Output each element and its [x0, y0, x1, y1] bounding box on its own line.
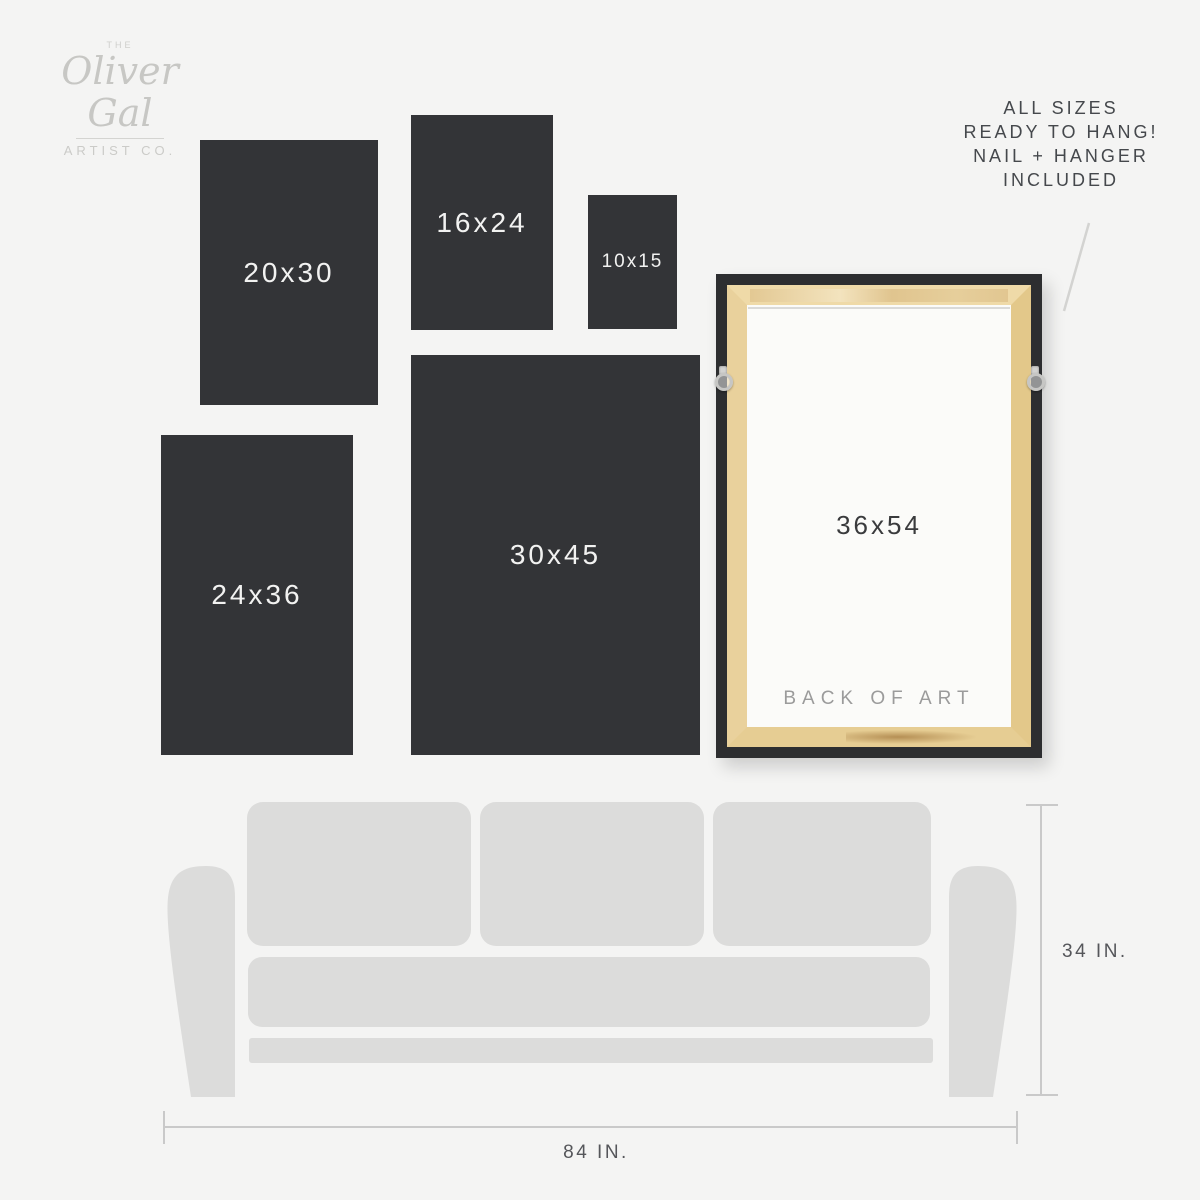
size-panel-24x36: 24x36: [161, 435, 353, 755]
d-ring-ring: [715, 373, 733, 391]
size-panel-36x54-back-of-art: 36x54 BACK OF ART: [716, 274, 1042, 758]
brand-logo-divider: [76, 138, 164, 139]
size-label-24x36: 24x36: [211, 579, 302, 611]
size-panel-16x24: 16x24: [411, 115, 553, 330]
couch-armrest-right: [949, 866, 1017, 1097]
couch-seat-cushion: [248, 957, 930, 1027]
canvas-seam: [748, 307, 1010, 309]
width-dimension-line: [164, 1111, 1017, 1144]
size-panel-10x15: 10x15: [588, 195, 677, 329]
size-panel-20x30: 20x30: [200, 140, 378, 405]
note-line-1: ALL SIZES: [928, 96, 1194, 120]
size-label-20x30: 20x30: [243, 257, 334, 289]
couch-back-cushion-1: [247, 802, 471, 946]
wood-grain-knot: [846, 730, 976, 744]
brand-logo-subtitle: ARTIST CO.: [28, 143, 212, 158]
ready-to-hang-note: ALL SIZES READY TO HANG! NAIL + HANGER I…: [928, 96, 1194, 192]
size-guide-infographic: THE Oliver Gal ARTIST CO. ALL SIZES READ…: [0, 0, 1200, 1200]
note-line-3: NAIL + HANGER: [928, 144, 1194, 168]
height-dimension-line: [1026, 805, 1058, 1095]
d-ring-hanger-right-icon: [1027, 366, 1043, 394]
d-ring-hanger-left-icon: [715, 366, 731, 394]
note-line-4: INCLUDED: [928, 168, 1194, 192]
couch-back-cushion-3: [713, 802, 931, 946]
couch-silhouette: [167, 802, 1016, 1097]
wood-grain-top: [750, 289, 1008, 302]
brand-logo-name: Oliver Gal: [28, 50, 212, 134]
size-label-36x54: 36x54: [716, 510, 1042, 541]
couch-armrest-left: [167, 866, 235, 1097]
brand-logo: THE Oliver Gal ARTIST CO.: [28, 40, 212, 158]
d-ring-ring: [1027, 373, 1045, 391]
size-label-16x24: 16x24: [436, 207, 527, 239]
couch-back-cushion-2: [480, 802, 704, 946]
couch-base-bar: [249, 1038, 933, 1063]
note-line-2: READY TO HANG!: [928, 120, 1194, 144]
note-pointer-line: [1064, 223, 1089, 311]
size-label-10x15: 10x15: [602, 251, 664, 273]
size-panel-30x45: 30x45: [411, 355, 700, 755]
size-label-30x45: 30x45: [510, 539, 601, 571]
couch-width-label: 84 IN.: [536, 1142, 656, 1164]
back-of-art-label: BACK OF ART: [716, 688, 1042, 710]
couch-height-label: 34 IN.: [1062, 941, 1128, 963]
